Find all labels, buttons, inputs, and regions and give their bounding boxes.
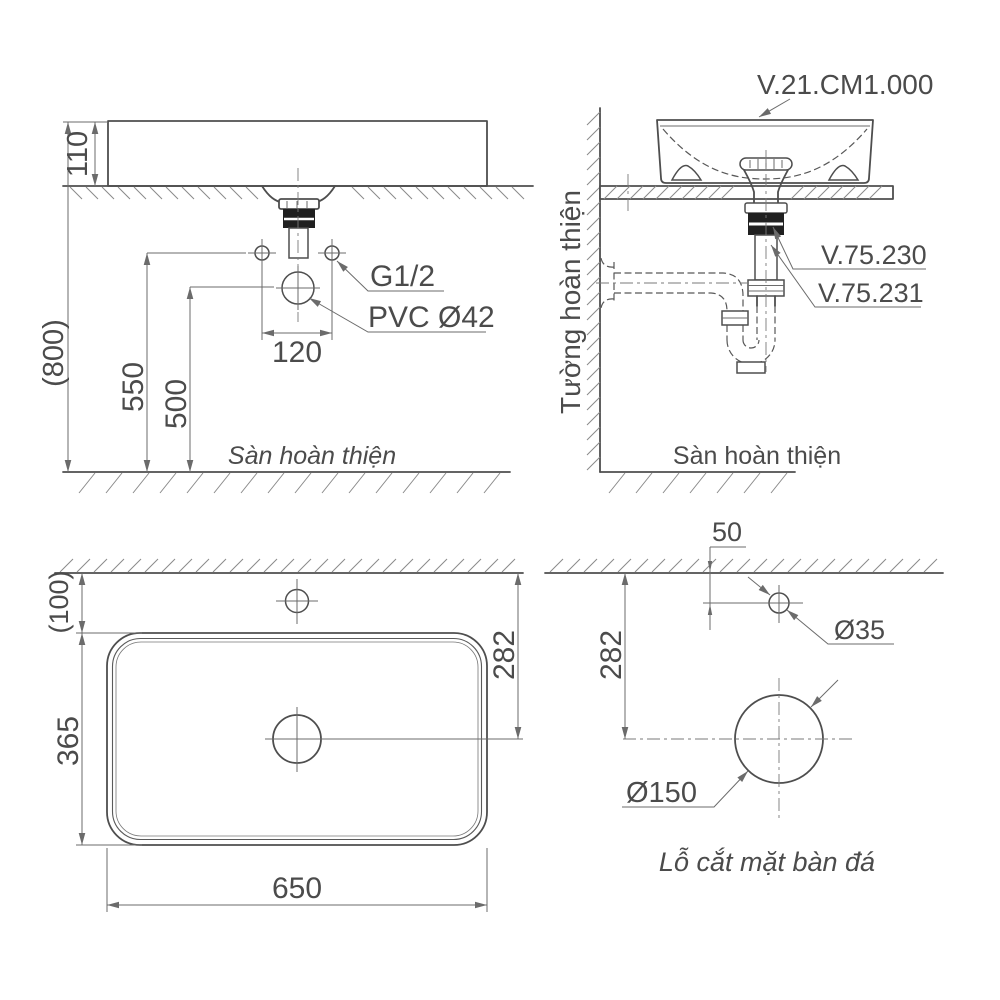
- dim-supply-height-label: 550: [117, 362, 150, 412]
- dim-basin-height-label: 110: [62, 131, 94, 177]
- product-code-label: V.21.CM1.000: [757, 69, 933, 100]
- trap-code-label: V.75.231: [818, 278, 924, 308]
- drain-tailpiece-front: [289, 228, 308, 258]
- pvc-drain-label: PVC Ø42: [368, 301, 495, 334]
- dim-overall-height-label: (800): [38, 319, 70, 387]
- trap-cleanout-cap: [737, 362, 765, 373]
- drain-code-label: V.75.230: [821, 240, 927, 270]
- dim-width-label: 650: [272, 872, 322, 905]
- dim-wall-clearance-label: (100): [44, 570, 74, 633]
- drain-flange-front: [279, 199, 319, 209]
- cutout-caption: Lỗ cắt mặt bàn đá: [659, 846, 875, 877]
- faucet-hole-dia-label: Ø35: [834, 615, 885, 645]
- basin-front-outline: [108, 121, 487, 186]
- dim-supply-spacing-label: 120: [272, 336, 322, 369]
- dim-pvc-height-label: 500: [160, 379, 193, 429]
- wall-label-side: Tường hoàn thiện: [555, 190, 586, 414]
- supply-thread-label: G1/2: [370, 260, 435, 293]
- drawing-sheet: 110 (800) 550 500 120 G1/2 PVC Ø42 Sàn h…: [0, 0, 1000, 1000]
- floor-label-front: Sàn hoàn thiện: [228, 442, 396, 470]
- drain-hole-dia-label: Ø150: [626, 777, 697, 809]
- floor-label-side: Sàn hoàn thiện: [673, 442, 841, 470]
- dim-depth-label: 365: [52, 716, 85, 766]
- dim-faucet-offset-label: 50: [712, 517, 742, 547]
- dim-drain-distance-cutout-label: 282: [595, 630, 628, 680]
- dim-drain-distance-plan-label: 282: [488, 630, 521, 680]
- technical-drawing-canvas: 110 (800) 550 500 120 G1/2 PVC Ø42 Sàn h…: [0, 0, 1000, 1000]
